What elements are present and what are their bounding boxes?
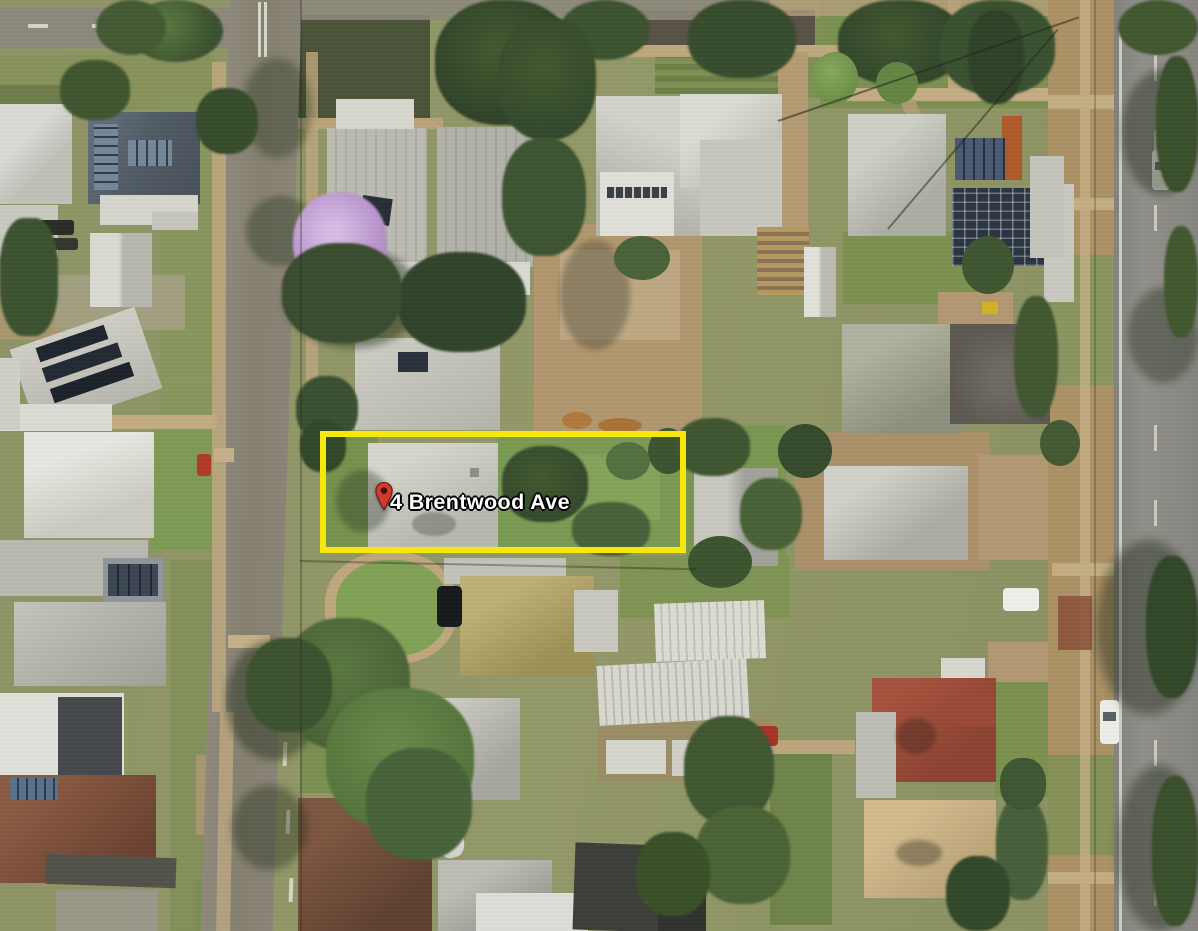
property-address-label: 4 Brentwood Ave [390,490,570,515]
aerial-satellite-map[interactable]: 4 Brentwood Ave [0,0,1198,931]
location-pin-icon [375,481,393,511]
property-marker[interactable] [375,481,393,511]
